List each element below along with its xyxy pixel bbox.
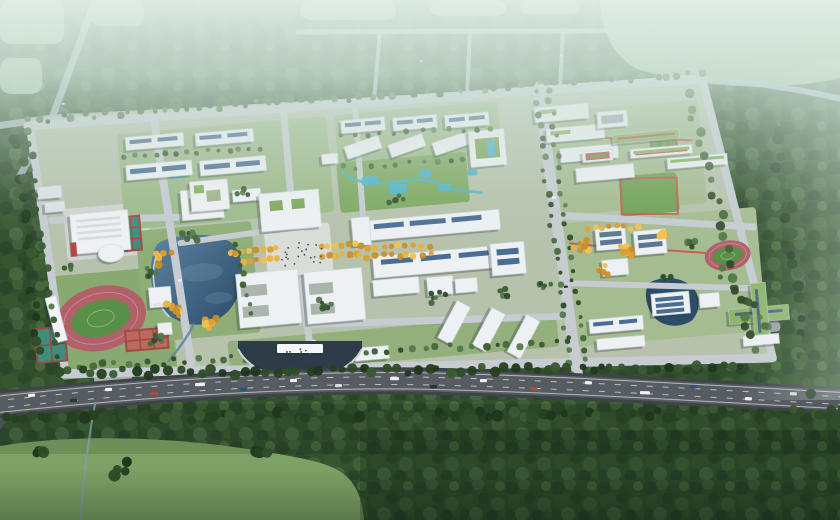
highway-north-trees bbox=[433, 365, 439, 371]
west-forest-edge bbox=[31, 336, 41, 346]
highway-south-trees bbox=[317, 409, 324, 416]
highway-south-trees bbox=[398, 412, 408, 422]
highway-north-trees bbox=[590, 367, 598, 375]
highway-north-trees bbox=[366, 367, 376, 377]
highway-north-trees bbox=[261, 369, 270, 378]
highway-north-trees bbox=[177, 366, 185, 374]
east-block bbox=[696, 292, 720, 310]
campus-car bbox=[564, 286, 568, 289]
highway-north-trees bbox=[550, 362, 560, 372]
highway-north-trees bbox=[347, 363, 357, 373]
highway-vehicle bbox=[640, 391, 650, 395]
highway-south-trees bbox=[491, 410, 503, 422]
highway-north-trees bbox=[446, 368, 456, 378]
highway-north-trees bbox=[392, 364, 401, 373]
highway-north-trees bbox=[54, 367, 64, 377]
highway-north-trees bbox=[205, 364, 216, 375]
highway-south-trees bbox=[690, 408, 698, 416]
highway-north-trees bbox=[675, 364, 683, 372]
highway-vehicle bbox=[240, 388, 247, 391]
highway-south-trees bbox=[109, 415, 117, 423]
highway-north-trees bbox=[313, 366, 323, 376]
teaching-building-east bbox=[301, 267, 366, 326]
highway-north-trees bbox=[653, 365, 661, 373]
highway-south-trees bbox=[170, 408, 182, 420]
highway-vehicle bbox=[150, 392, 157, 396]
highway-north-trees bbox=[64, 366, 72, 374]
highway-south-trees bbox=[67, 413, 78, 424]
highway-north-trees bbox=[413, 365, 423, 375]
highway-south-trees bbox=[257, 413, 264, 420]
campus-car bbox=[178, 279, 182, 282]
highway-south-trees bbox=[338, 411, 348, 421]
west-forest-edge bbox=[23, 280, 31, 288]
highway-north-trees bbox=[682, 366, 690, 374]
highway-north-trees bbox=[109, 370, 117, 378]
highway-north-trees bbox=[291, 368, 299, 376]
highway-north-trees bbox=[534, 367, 541, 374]
highway-south-trees bbox=[42, 413, 52, 423]
highway-vehicle bbox=[290, 379, 297, 382]
highway-north-trees bbox=[606, 363, 612, 369]
highway-north-trees bbox=[638, 365, 647, 374]
highway-south-trees bbox=[718, 406, 727, 415]
highway-north-trees bbox=[562, 363, 571, 372]
highway-south-trees bbox=[210, 411, 220, 421]
highway-south-trees bbox=[733, 407, 742, 416]
highway-vehicle bbox=[195, 383, 205, 387]
pedestrian-dot bbox=[286, 351, 288, 353]
west-forest-edge bbox=[30, 329, 38, 337]
highway-south-trees bbox=[526, 411, 538, 423]
screenshot-root bbox=[0, 0, 840, 520]
west-forest-edge bbox=[25, 264, 33, 272]
highway-south-trees bbox=[826, 405, 836, 415]
meadow-grove bbox=[122, 459, 130, 467]
highway-south-trees bbox=[645, 412, 655, 422]
highway-north-trees bbox=[691, 360, 701, 370]
highway-south-trees bbox=[58, 413, 67, 422]
highway-north-trees bbox=[230, 370, 241, 381]
highway-south-trees bbox=[546, 410, 556, 420]
pedestrian-dot bbox=[289, 351, 291, 353]
teaching-building-west bbox=[233, 269, 303, 331]
highway-south-trees bbox=[128, 409, 139, 420]
west-forest-edge bbox=[33, 301, 40, 308]
west-forest-edge bbox=[28, 293, 37, 302]
highway-south-trees bbox=[159, 411, 171, 423]
highway-south-trees bbox=[484, 413, 492, 421]
highway-north-trees bbox=[728, 362, 737, 371]
highway-south-trees bbox=[629, 410, 637, 418]
east-block bbox=[699, 292, 720, 308]
highway-north-trees bbox=[618, 363, 625, 370]
campus-aerial-rendering bbox=[0, 0, 840, 520]
highway-south-trees bbox=[796, 408, 805, 417]
highway-north-trees bbox=[250, 366, 261, 377]
highway-north-trees bbox=[499, 362, 509, 372]
highway-south-trees bbox=[354, 411, 366, 423]
highway-south-trees bbox=[475, 407, 485, 417]
east-red-courts-court bbox=[140, 330, 153, 339]
highway-south-trees bbox=[300, 413, 310, 423]
highway-south-trees bbox=[322, 415, 331, 424]
teaching-building-west-roof-detail bbox=[242, 305, 269, 318]
highway-south-trees bbox=[377, 411, 385, 419]
highway-south-trees bbox=[654, 407, 661, 414]
academic-wing bbox=[424, 276, 455, 299]
highway-south-trees bbox=[245, 410, 255, 420]
teaching-building-west bbox=[236, 269, 302, 328]
highway-south-trees bbox=[450, 411, 461, 422]
highway-south-trees bbox=[11, 415, 19, 423]
highway-north-trees bbox=[241, 367, 251, 377]
pond-hall bbox=[648, 291, 691, 319]
highway-north-trees bbox=[708, 363, 717, 372]
highway-north-trees bbox=[511, 363, 520, 372]
teaching-building-east bbox=[304, 267, 366, 324]
highway-north-trees bbox=[163, 366, 173, 376]
highway-south-trees bbox=[599, 411, 610, 422]
highway-north-trees bbox=[664, 363, 674, 373]
highway-vehicle bbox=[585, 381, 592, 384]
highway-south-trees bbox=[99, 415, 108, 424]
school-mid-block bbox=[599, 258, 629, 279]
highway-south-trees bbox=[637, 407, 646, 416]
east-red-courts-court bbox=[126, 331, 139, 340]
highway-south-trees bbox=[224, 410, 235, 421]
highway-south-trees bbox=[763, 411, 772, 420]
highway-north-trees bbox=[150, 364, 160, 374]
highway-north-trees bbox=[524, 362, 533, 371]
highway-vehicle bbox=[105, 388, 112, 392]
highway-vehicle bbox=[430, 385, 437, 388]
highway-south-trees bbox=[27, 411, 37, 421]
highway-south-trees bbox=[675, 410, 684, 419]
highway-south-trees bbox=[567, 405, 577, 415]
highway-north-trees bbox=[132, 366, 142, 376]
highway-north-trees bbox=[467, 366, 477, 376]
pedestrian-dot bbox=[305, 350, 307, 352]
pedestrian-dot bbox=[292, 354, 294, 356]
highway-south-trees bbox=[194, 409, 206, 421]
academic-link bbox=[455, 277, 478, 293]
east-red-courts-court bbox=[127, 341, 140, 350]
highway-vehicle bbox=[390, 377, 399, 380]
highway-north-trees bbox=[383, 364, 392, 373]
highway-north-trees bbox=[720, 362, 727, 369]
highway-vehicle bbox=[70, 399, 77, 403]
highway-north-trees bbox=[86, 369, 94, 377]
highway-north-trees bbox=[599, 364, 605, 370]
highway-south-trees bbox=[698, 407, 707, 416]
highway-north-trees bbox=[330, 365, 337, 372]
highway-north-trees bbox=[219, 369, 227, 377]
highway-north-trees bbox=[79, 365, 87, 373]
highway-south-trees bbox=[776, 411, 785, 420]
highway-south-trees bbox=[509, 406, 521, 418]
meadow-grove bbox=[262, 447, 272, 457]
highway-north-trees bbox=[478, 363, 485, 370]
highway-south-trees bbox=[743, 412, 751, 420]
west-forest-edge bbox=[32, 313, 40, 321]
highway-north-trees bbox=[456, 368, 466, 378]
highway-south-trees bbox=[79, 412, 91, 424]
highway-north-trees bbox=[339, 366, 345, 372]
west-forest-edge bbox=[36, 347, 44, 355]
highway-north-trees bbox=[187, 368, 195, 376]
bottom-vignette bbox=[0, 468, 840, 520]
right-fog bbox=[740, 60, 840, 400]
highway-vehicle bbox=[690, 385, 697, 388]
highway-south-trees bbox=[616, 408, 624, 416]
highway-vehicle bbox=[530, 387, 537, 390]
highway-north-trees bbox=[96, 369, 106, 379]
highway-north-trees bbox=[273, 368, 282, 377]
highway-vehicle bbox=[28, 394, 35, 398]
highway-south-trees bbox=[148, 413, 158, 423]
pedestrian-dot bbox=[300, 348, 302, 350]
pedestrian-dot bbox=[300, 351, 302, 353]
haze-overlay bbox=[0, 0, 840, 250]
pedestrian-dot bbox=[310, 353, 312, 355]
meadow-grove bbox=[38, 447, 49, 458]
highway-south-trees bbox=[280, 411, 288, 419]
highway-south-trees bbox=[2, 412, 11, 421]
highway-vehicle bbox=[480, 379, 487, 382]
highway-south-trees bbox=[709, 405, 718, 414]
highway-north-trees bbox=[119, 366, 126, 373]
west-forest-edge bbox=[29, 323, 36, 330]
academic-link bbox=[452, 277, 478, 295]
highway-south-trees bbox=[815, 409, 825, 419]
highway-north-trees bbox=[580, 364, 586, 370]
highway-south-trees bbox=[420, 410, 429, 419]
highway-south-trees bbox=[464, 409, 472, 417]
highway-south-trees bbox=[440, 412, 449, 421]
highway-vehicle bbox=[335, 384, 342, 387]
highway-south-trees bbox=[140, 410, 150, 420]
highway-south-trees bbox=[89, 411, 99, 421]
highway-south-trees bbox=[118, 409, 129, 420]
highway-north-trees bbox=[405, 370, 412, 377]
teaching-building-east-roof-detail bbox=[309, 282, 334, 295]
